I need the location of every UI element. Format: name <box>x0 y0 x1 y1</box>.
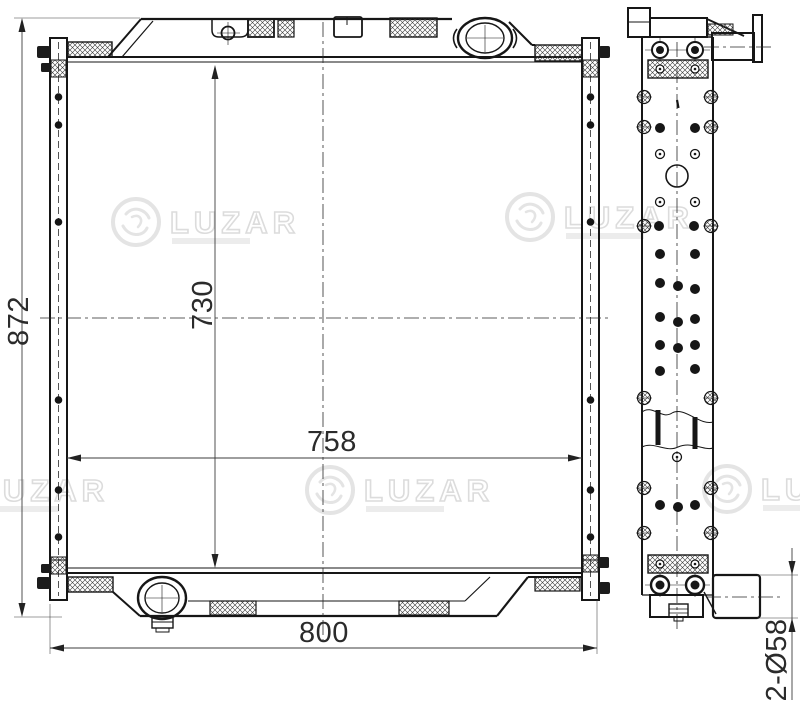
dim-label-758: 758 <box>307 426 357 458</box>
dim-label-800: 800 <box>299 617 349 649</box>
mount-bolt <box>599 46 610 58</box>
radiator-core <box>67 57 582 573</box>
right-bracket <box>582 38 610 600</box>
luzar-watermark: LUZAR <box>704 466 800 512</box>
mount-bolt <box>599 582 610 594</box>
luzar-watermark: LUZAR <box>113 199 300 245</box>
dimension-core-height: 730 <box>187 65 219 568</box>
bottom-foot <box>650 595 703 617</box>
mount-hole-recess <box>212 19 248 37</box>
section-break <box>642 410 713 449</box>
drawing-svg: LUZAR LUZAR LUZAR LUZAR <box>0 0 800 707</box>
luzar-watermark: LUZAR <box>0 467 109 513</box>
mount-bolt <box>37 46 50 58</box>
top-tank <box>68 17 582 61</box>
mount-bolt <box>41 63 50 72</box>
side-view <box>628 8 782 633</box>
drain-nut <box>669 604 688 617</box>
dimension-pipe-diameter: 2-Ø58 <box>757 548 798 702</box>
luzar-watermarks: LUZAR LUZAR LUZAR LUZAR <box>0 194 800 513</box>
outlet-pipe <box>713 575 760 618</box>
luzar-watermark: LUZAR <box>507 194 694 240</box>
luzar-watermark: LUZAR <box>307 467 494 513</box>
dimension-overall-height: 872 <box>3 18 140 617</box>
mount-bolt <box>599 557 609 568</box>
dim-label-730: 730 <box>187 280 219 330</box>
left-bracket <box>37 38 67 600</box>
inlet-pipe <box>712 33 754 60</box>
watermark-brand-text: LUZAR <box>564 200 694 235</box>
watermark-brand-text: LUZAR <box>761 472 800 507</box>
watermark-brand-text: LUZAR <box>170 205 300 240</box>
watermark-brand-text: LUZAR <box>364 473 494 508</box>
mount-bolt <box>41 564 50 573</box>
top-tank-side <box>650 18 707 37</box>
mount-bolt <box>37 577 50 589</box>
watermark-brand-text: LUZAR <box>0 473 109 508</box>
dim-label-pipes: 2-Ø58 <box>761 618 793 701</box>
dim-label-872: 872 <box>3 296 35 346</box>
radiator-technical-drawing: LUZAR LUZAR LUZAR LUZAR <box>0 0 800 707</box>
front-view <box>37 17 610 640</box>
dimension-core-width: 758 <box>67 426 582 462</box>
edge-washers <box>636 91 719 540</box>
